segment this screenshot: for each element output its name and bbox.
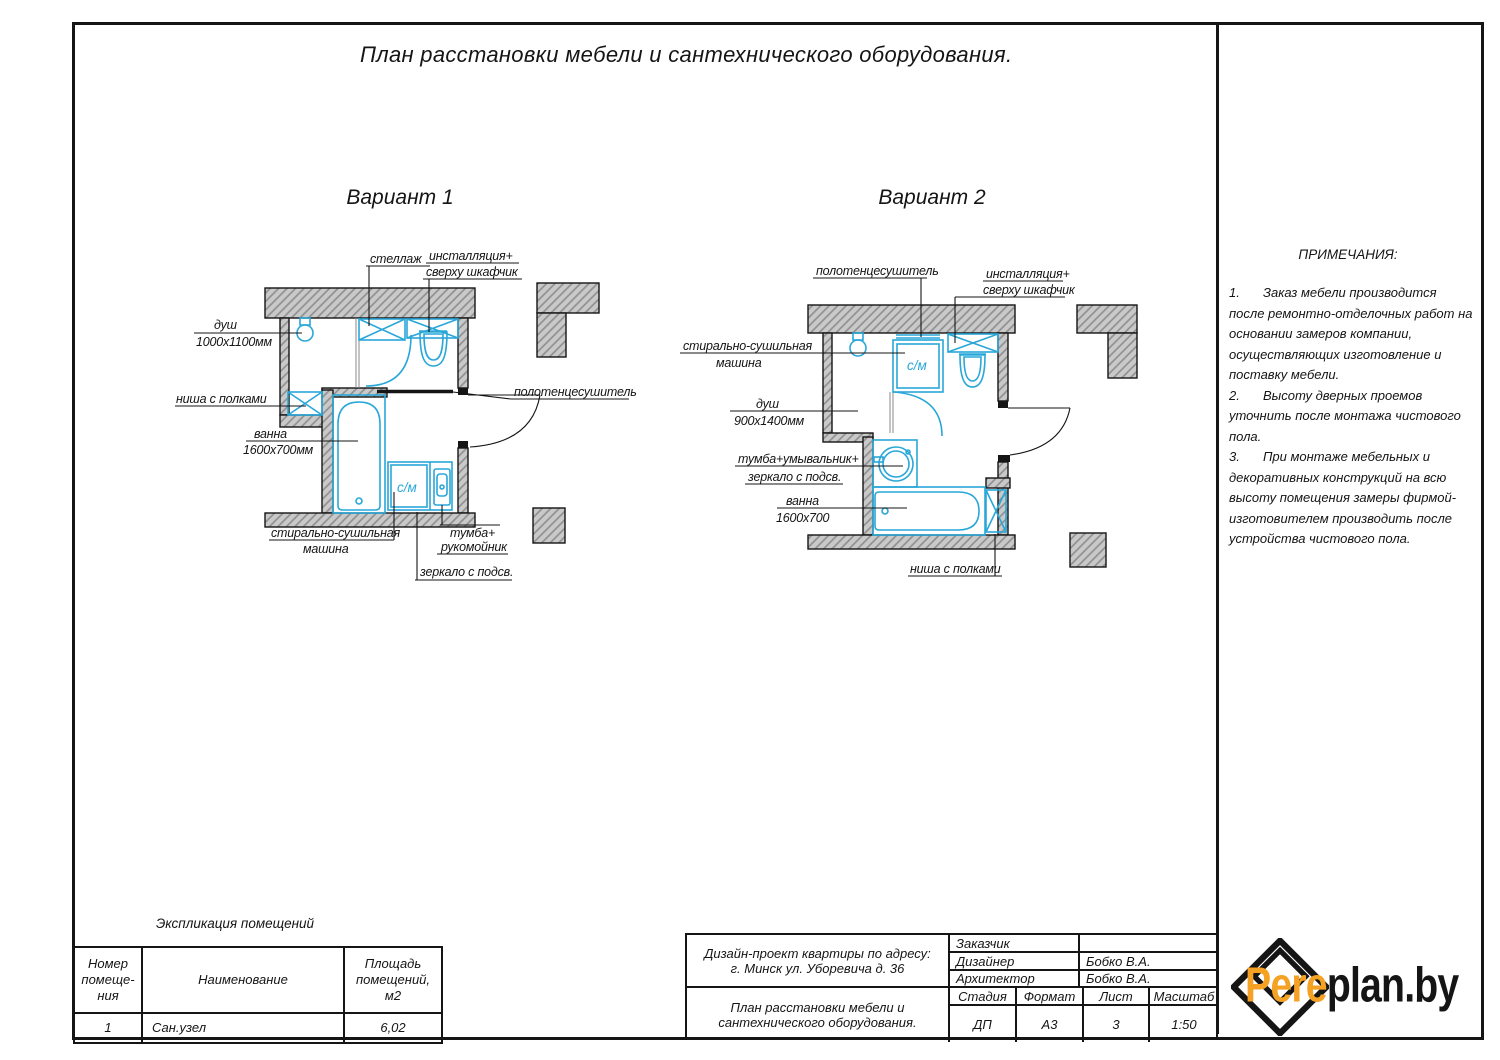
- label-vanity-2: зеркало с подсв.: [747, 470, 841, 484]
- bathtub-icon: [873, 487, 985, 535]
- note-number: 3.: [1229, 447, 1263, 468]
- toilet-icon: [959, 354, 986, 387]
- project-address-line2: г. Минск ул. Уборевича д. 36: [731, 961, 905, 976]
- label-installation-2: сверху шкафчик: [983, 283, 1076, 297]
- architect-label: Архитектор: [950, 971, 1080, 988]
- washer-label: с/м: [397, 480, 417, 495]
- shower-partition: [890, 392, 893, 433]
- variant-1-heading: Вариант 1: [320, 186, 480, 210]
- scale-label: Масштаб: [1150, 988, 1218, 1006]
- notes-list: 1.Заказ мебели производится после ремонт…: [1229, 283, 1474, 550]
- door-swing: [468, 395, 540, 447]
- note-item-2: 2.Высоту дверных проемов уточнить после …: [1229, 386, 1474, 448]
- label-washer-1: стирально-сушильная: [683, 339, 813, 353]
- logo-wordmark: Pereplan.by: [1245, 957, 1458, 1013]
- bathtub-icon: [333, 395, 385, 513]
- sheet-label: Лист: [1084, 988, 1150, 1006]
- washer-label: с/м: [907, 358, 927, 373]
- page-title: План расстановки мебели и сантехническог…: [360, 42, 960, 68]
- logo-text-black: plan.by: [1327, 958, 1459, 1012]
- customer-label: Заказчик: [950, 935, 1080, 953]
- label-shelving: стеллаж: [370, 252, 423, 266]
- shower-door-arc: [366, 335, 411, 386]
- label-vanity-1: тумба+умывальник+: [738, 452, 859, 466]
- label-vanity-2: рукомойник: [440, 540, 508, 554]
- label-vanity-1: тумба+: [450, 526, 495, 540]
- sink-icon: [434, 469, 450, 505]
- designer-label: Дизайнер: [950, 953, 1080, 971]
- cell-room-number: 1: [74, 1013, 142, 1043]
- sink-icon: [873, 440, 917, 487]
- cell-room-name: Сан.узел: [142, 1013, 344, 1043]
- stage-label: Стадия: [950, 988, 1017, 1006]
- note-item-3: 3.При монтаже мебельных и декоративных к…: [1229, 447, 1474, 550]
- logo-text-orange: Pere: [1245, 958, 1327, 1012]
- scale-value: 1:50: [1150, 1006, 1218, 1042]
- architect-value: Бобко В.А.: [1080, 971, 1218, 988]
- col-header-name: Наименование: [142, 947, 344, 1013]
- col-header-number: Номер помеще-ния: [74, 947, 142, 1013]
- note-text: Высоту дверных проемов уточнить после мо…: [1229, 388, 1461, 444]
- label-niche: ниша с полками: [176, 392, 267, 406]
- explication-heading: Экспликация помещений: [85, 916, 385, 931]
- pereplan-logo: Pereplan.by: [1221, 935, 1484, 1038]
- niche-shelves-icon: [288, 392, 322, 415]
- label-installation-1: инсталляция+: [986, 267, 1070, 281]
- shower-door-arc: [894, 392, 942, 436]
- project-address-line1: Дизайн-проект квартиры по адресу:: [704, 946, 931, 961]
- label-installation-2: сверху шкафчик: [426, 265, 519, 279]
- variant-2-heading: Вариант 2: [852, 186, 1012, 210]
- label-shower-size: 1000х1100мм: [196, 335, 273, 349]
- label-shower: душ: [214, 318, 238, 332]
- project-address-cell: Дизайн-проект квартиры по адресу: г. Мин…: [687, 935, 950, 988]
- note-text: При монтаже мебельных и декоративных кон…: [1229, 449, 1456, 546]
- towel-rail: [896, 335, 940, 338]
- washing-machine: с/м: [893, 340, 943, 392]
- table-row: 1 Сан.узел 6,02: [74, 1013, 442, 1043]
- stage-value: ДП: [950, 1006, 1017, 1042]
- label-bath: ванна: [254, 427, 287, 441]
- cell-room-area: 6,02: [344, 1013, 442, 1043]
- format-label: Формат: [1017, 988, 1084, 1006]
- sheet-value: 3: [1084, 1006, 1150, 1042]
- notes-heading: ПРИМЕЧАНИЯ:: [1228, 247, 1468, 262]
- label-mirror: зеркало с подсв.: [419, 565, 513, 579]
- shelving-unit-icon: [359, 319, 405, 340]
- toilet-icon: [419, 331, 447, 366]
- walls: [808, 305, 1137, 567]
- fixtures: с/м: [288, 318, 458, 513]
- designer-value: Бобко В.А.: [1080, 953, 1218, 971]
- label-washer-2: машина: [716, 356, 762, 370]
- note-text: Заказ мебели производится после ремонтно…: [1229, 285, 1472, 382]
- label-towel-rail: полотенцесушитель: [816, 264, 939, 278]
- label-washer-1: стирально-сушильная: [271, 526, 401, 540]
- floor-plan-variant-1: с/м стеллаж инсталляция+ сверху шка: [170, 240, 640, 590]
- floor-plan-variant-2: с/м: [670, 240, 1170, 590]
- explication-header-row: Номер помеще-ния Наименование Площадь по…: [74, 947, 442, 1013]
- drawing-sheet: План расстановки мебели и сантехническог…: [0, 0, 1500, 1060]
- label-bath-size: 1600х700мм: [243, 443, 314, 457]
- col-header-area: Площадь помещений, м2: [344, 947, 442, 1013]
- format-value: А3: [1017, 1006, 1084, 1042]
- label-towel-rail: полотенцесушитель: [514, 385, 637, 399]
- drawing-title-cell: План расстановки мебели и сантехническог…: [687, 988, 950, 1042]
- note-item-1: 1.Заказ мебели производится после ремонт…: [1229, 283, 1474, 386]
- note-number: 1.: [1229, 283, 1263, 304]
- label-niche: ниша с полками: [910, 562, 1001, 576]
- shower-head-icon: [297, 318, 313, 341]
- label-washer-2: машина: [303, 542, 349, 556]
- title-block: Дизайн-проект квартиры по адресу: г. Мин…: [685, 933, 1218, 1040]
- explication-table: Номер помеще-ния Наименование Площадь по…: [73, 946, 443, 1044]
- label-shower-size: 900х1400мм: [734, 414, 805, 428]
- label-installation-1: инсталляция+: [429, 249, 513, 263]
- label-bath-size: 1600х700: [776, 511, 830, 525]
- note-number: 2.: [1229, 386, 1263, 407]
- door-swing: [1008, 408, 1070, 455]
- label-shower: душ: [756, 397, 780, 411]
- customer-value: [1080, 935, 1218, 953]
- label-bath: ванна: [786, 494, 819, 508]
- walls: [265, 283, 599, 543]
- installation-cabinet-icon: [407, 319, 458, 338]
- notes-panel-divider: [1216, 22, 1219, 1034]
